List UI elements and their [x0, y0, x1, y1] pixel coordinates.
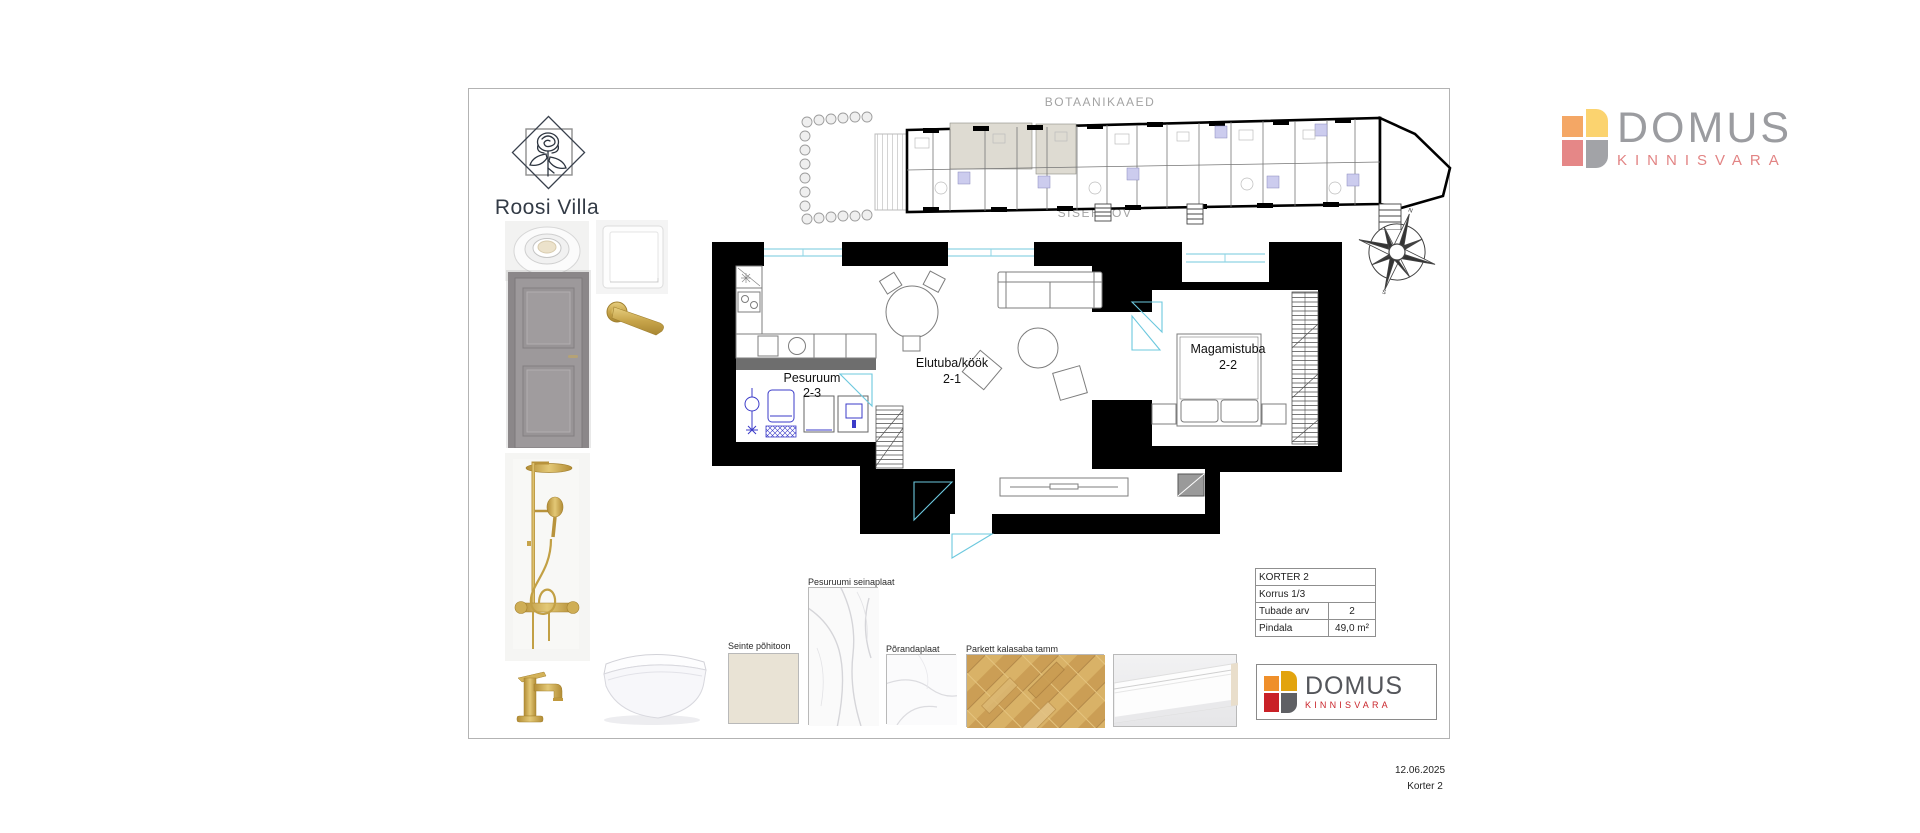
footer-date: 12.06.2025 — [1360, 765, 1480, 776]
swatch-parquet — [966, 654, 1104, 727]
label-wall-paint: Seinte põhitoon — [728, 641, 791, 651]
domus-logo-top: DOMUS KINNISVARA — [1562, 106, 1792, 170]
shaft — [1178, 474, 1204, 496]
washroom-mat — [766, 426, 796, 437]
info-area-label: Pindala — [1256, 620, 1329, 637]
shower-set-icon — [505, 453, 590, 661]
shower-set-photo — [505, 453, 590, 661]
door-handle-photo — [598, 297, 672, 347]
swatch-wall-paint — [728, 653, 799, 724]
stairs — [876, 406, 903, 468]
rose-icon — [503, 110, 593, 198]
design-board-page: Roosi Villa — [0, 0, 1920, 833]
label-magamistuba: Magamistuba — [1190, 342, 1265, 356]
domus-wordmark-top: DOMUS — [1617, 107, 1792, 150]
ceiling-symbol — [741, 273, 751, 283]
light-switch-icon — [596, 220, 668, 294]
label-elutuba: Elutuba/köök — [916, 356, 989, 370]
info-floor: Korrus 1/3 — [1256, 586, 1376, 603]
domus-logo-box: DOMUS KINNISVARA — [1256, 664, 1437, 720]
info-rooms-value: 2 — [1329, 603, 1376, 620]
info-area-value: 49,0 m² — [1329, 620, 1376, 637]
apartment-info-table: KORTER 2 Korrus 1/3 Tubade arv 2 Pindala… — [1255, 568, 1376, 637]
label-wall-tile: Pesuruumi seinaplaat — [808, 577, 895, 587]
footer-sheet: Korter 2 — [1370, 781, 1480, 792]
door-photo — [506, 270, 591, 448]
light-switch-photo — [596, 220, 668, 294]
faucet-photo — [510, 664, 568, 726]
site-label-botaanikaaed: BOTAANIKAAED — [1000, 95, 1200, 109]
swatch-wall-tile — [808, 587, 878, 725]
label-parquet: Parkett kalasaba tamm — [966, 644, 1058, 654]
room-hall — [1092, 312, 1154, 400]
faucet-icon — [510, 664, 568, 726]
svg-text:2-2: 2-2 — [1219, 358, 1237, 372]
kinnisvara-wordmark: KINNISVARA — [1305, 700, 1403, 710]
domus-mark-icon-top — [1562, 106, 1608, 170]
label-pesuruum: Pesuruum — [784, 371, 841, 385]
domus-mark-icon — [1264, 669, 1298, 715]
roosi-villa-name: Roosi Villa — [487, 196, 607, 220]
domus-wordmark: DOMUS — [1305, 674, 1403, 699]
wardrobe — [1292, 292, 1318, 444]
svg-text:N: N — [1407, 208, 1413, 215]
info-apartment: KORTER 2 — [1256, 569, 1376, 586]
info-rooms-label: Tubade arv — [1256, 603, 1329, 620]
swatch-floor-tile — [886, 654, 956, 724]
swatch-baseboard — [1113, 654, 1237, 727]
svg-text:2-1: 2-1 — [943, 372, 961, 386]
label-floor-tile: Põrandaplaat — [886, 644, 940, 654]
toilet-photo — [592, 636, 716, 728]
site-terrace — [875, 134, 907, 210]
door-icon — [506, 270, 591, 448]
site-trees — [800, 112, 872, 224]
floor-plan: Elutuba/köök 2-1 Pesuruum 2-3 Magamistub… — [700, 228, 1420, 560]
roosi-villa-logo — [503, 110, 593, 198]
toilet-icon — [592, 636, 716, 728]
kinnisvara-wordmark-top: KINNISVARA — [1617, 152, 1792, 169]
door-handle-icon — [598, 297, 672, 347]
highlighted-unit — [950, 123, 1032, 169]
svg-text:2-3: 2-3 — [803, 386, 821, 400]
